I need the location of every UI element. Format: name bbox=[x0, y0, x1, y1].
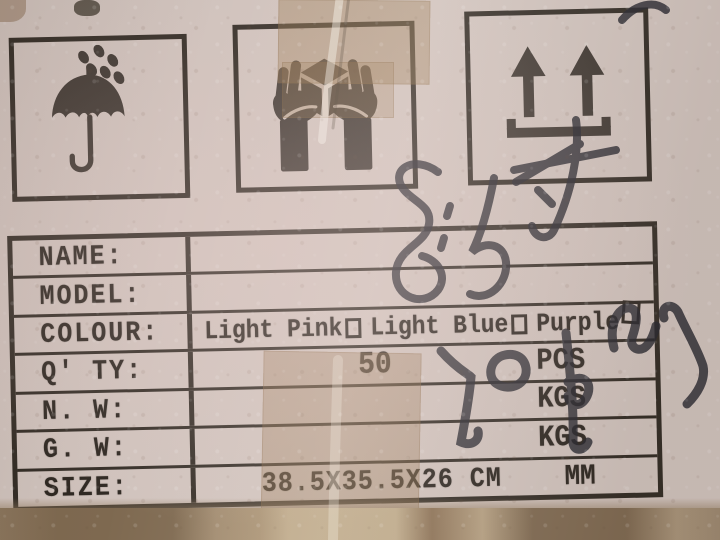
cardboard-box-photo: NAME: MODEL: COLOUR: Light PinkLight Blu… bbox=[0, 0, 720, 540]
colour-option-purple: Purple bbox=[534, 307, 619, 338]
gw-unit: KGS bbox=[538, 421, 587, 456]
pictogram-keep-dry bbox=[9, 34, 191, 202]
name-label: NAME: bbox=[38, 240, 124, 274]
box-bottom-edge bbox=[0, 508, 720, 540]
pictogram-this-way-up bbox=[464, 7, 652, 185]
qty-label: Q' TY: bbox=[41, 355, 144, 390]
umbrella-rain-icon bbox=[35, 43, 164, 192]
gw-label: G. W: bbox=[43, 432, 129, 466]
model-label: MODEL: bbox=[39, 278, 142, 313]
dark-mark-top-left bbox=[74, 0, 100, 16]
colour-option-light-blue: Light Blue bbox=[368, 310, 509, 342]
colour-label: COLOUR: bbox=[40, 316, 160, 351]
double-up-arrows-icon bbox=[493, 26, 624, 167]
checkbox-light-blue bbox=[511, 314, 527, 334]
checkbox-light-pink bbox=[345, 318, 361, 338]
nw-unit: KGS bbox=[537, 383, 586, 418]
checkbox-purple bbox=[621, 300, 640, 324]
qty-unit: PCS bbox=[536, 344, 585, 379]
packing-tape-top-extension bbox=[282, 62, 394, 118]
nw-label: N. W: bbox=[42, 393, 128, 427]
colour-option-light-pink: Light Pink bbox=[192, 313, 343, 346]
size-unit: MM bbox=[564, 459, 596, 493]
